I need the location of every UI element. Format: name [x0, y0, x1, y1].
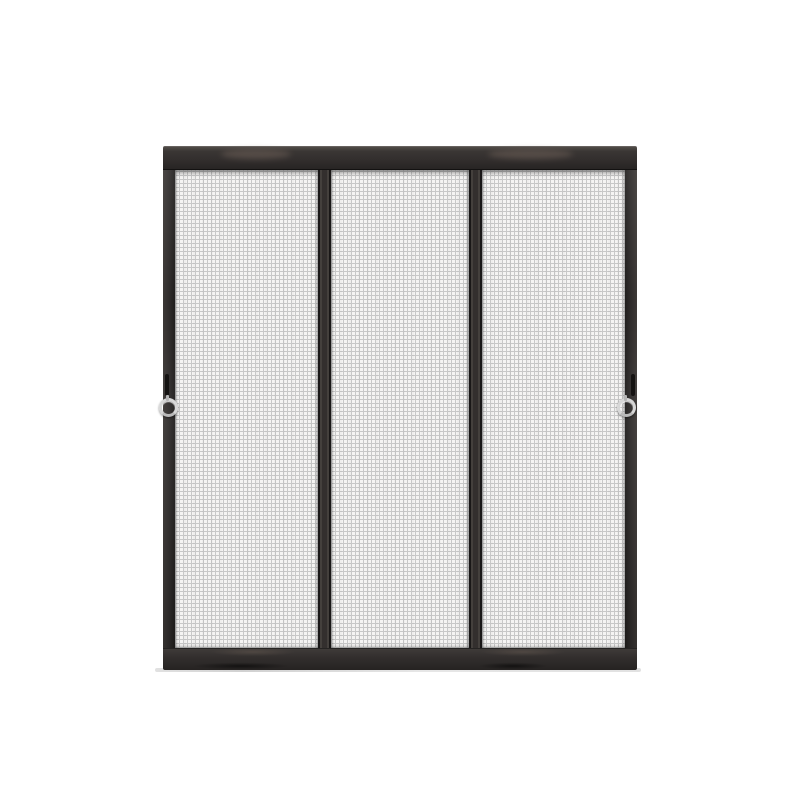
mesh-panel-right — [482, 170, 625, 648]
latch-hook-right — [631, 374, 635, 396]
latch-hook-left — [165, 374, 169, 396]
bottom-rail — [163, 648, 637, 670]
panel-divider-2 — [469, 170, 482, 648]
panel-divider-1 — [318, 170, 331, 648]
pull-ring-right — [617, 398, 636, 417]
top-rail — [163, 146, 637, 170]
top-rail-reflection-right — [488, 149, 573, 159]
product-image — [0, 0, 800, 800]
pull-ring-left — [159, 398, 178, 417]
screen-door — [163, 146, 637, 670]
mesh-panel-center — [331, 170, 469, 648]
top-rail-reflection-left — [221, 149, 291, 159]
mesh-panel-left — [175, 170, 318, 648]
